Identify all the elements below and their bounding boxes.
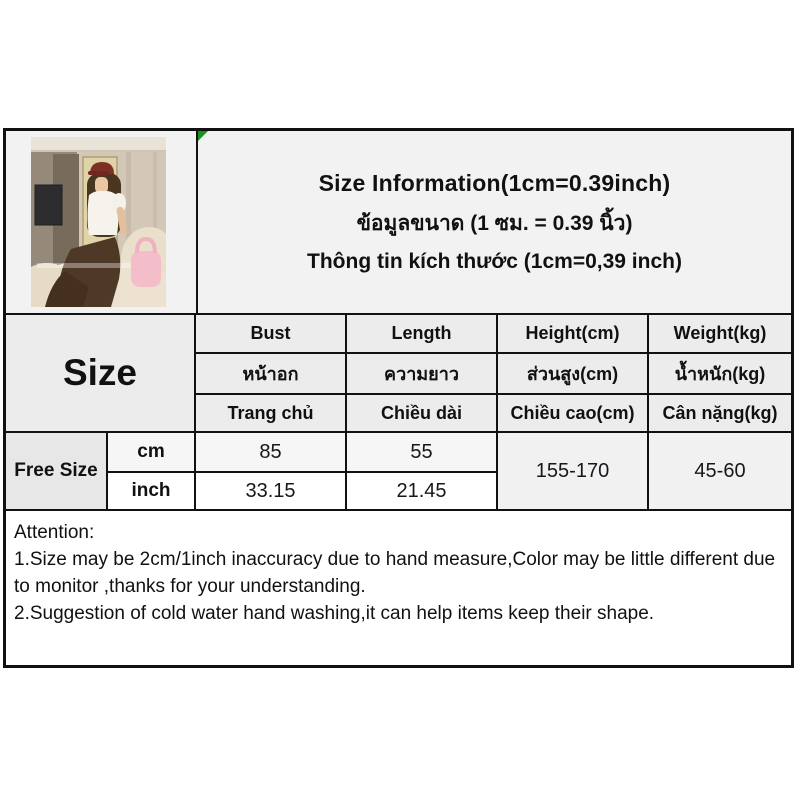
attention-heading: Attention: [14, 519, 783, 546]
title-cell: Size Information(1cm=0.39inch) ข้อมูลขนา… [198, 131, 791, 313]
column-header-bust-th: หน้าอก [196, 354, 345, 393]
title-english: Size Information(1cm=0.39inch) [319, 170, 671, 197]
height-range-value: 155-170 [498, 433, 647, 509]
column-header-height-th: ส่วนสูง(cm) [498, 354, 647, 393]
column-header-weight-vi: Cân nặng(kg) [649, 395, 791, 431]
size-corner-label: Size [6, 315, 194, 431]
column-header-weight-en: Weight(kg) [649, 315, 791, 352]
weight-range-value: 45-60 [649, 433, 791, 509]
size-chart-sheet: Size Information(1cm=0.39inch) ข้อมูลขนา… [3, 128, 794, 668]
column-header-length-vi: Chiều dài [347, 395, 496, 431]
length-value-cm: 55 [347, 433, 496, 471]
column-header-length-th: ความยาว [347, 354, 496, 393]
unit-label-inch: inch [108, 473, 194, 509]
length-value-inch: 21.45 [347, 473, 496, 509]
size-table: Size Bust Length Height(cm) Weight(kg) ห… [6, 315, 791, 511]
column-header-bust-en: Bust [196, 315, 345, 352]
attention-note-2: 2.Suggestion of cold water hand washing,… [14, 600, 783, 627]
size-chart-page: Size Information(1cm=0.39inch) ข้อมูลขนา… [0, 0, 800, 800]
column-header-height-en: Height(cm) [498, 315, 647, 352]
model-photo-cell [6, 131, 198, 313]
unit-label-cm: cm [108, 433, 194, 471]
column-header-weight-th: น้ำหนัก(kg) [649, 354, 791, 393]
title-thai: ข้อมูลขนาด (1 ซม. = 0.39 นิ้ว) [357, 207, 633, 240]
top-section: Size Information(1cm=0.39inch) ข้อมูลขนา… [6, 131, 791, 315]
bust-value-inch: 33.15 [196, 473, 345, 509]
size-row-label: Free Size [6, 433, 106, 509]
attention-section: Attention: 1.Size may be 2cm/1inch inacc… [6, 511, 791, 665]
model-photo [31, 137, 166, 307]
column-header-length-en: Length [347, 315, 496, 352]
column-header-height-vi: Chiều cao(cm) [498, 395, 647, 431]
cell-corner-marker-icon [198, 131, 208, 141]
column-header-bust-vi: Trang chủ [196, 395, 345, 431]
title-vietnamese: Thông tin kích thước (1cm=0,39 inch) [307, 250, 682, 274]
bust-value-cm: 85 [196, 433, 345, 471]
attention-note-1: 1.Size may be 2cm/1inch inaccuracy due t… [14, 546, 783, 600]
